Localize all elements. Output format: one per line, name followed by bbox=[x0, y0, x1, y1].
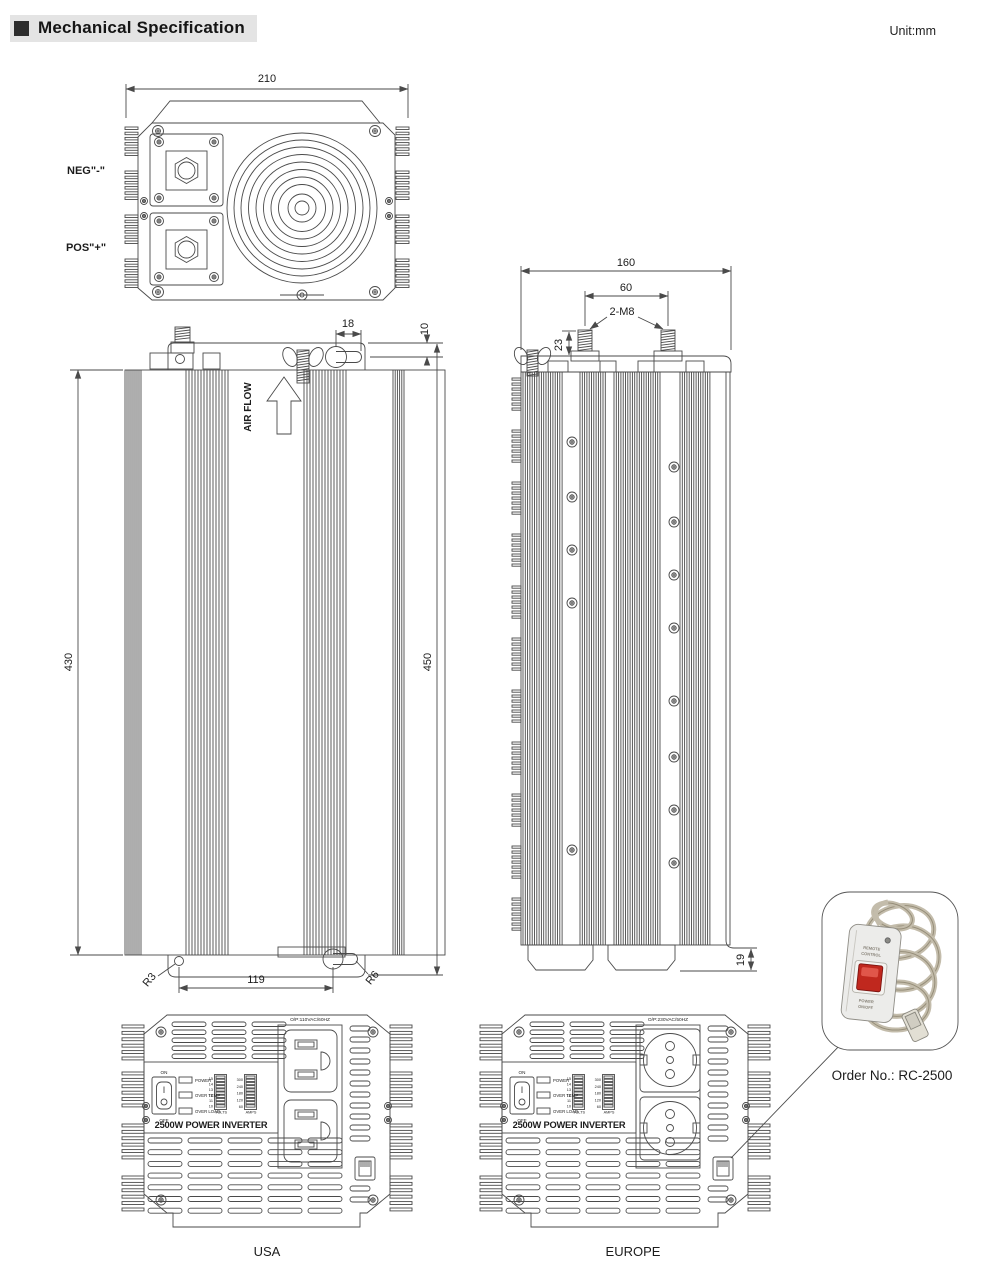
volts-tick: 10 bbox=[209, 1105, 213, 1109]
switch-on-label: ON bbox=[519, 1070, 526, 1075]
dim-bracket-offset: 10 bbox=[419, 323, 431, 335]
dim-keyhole: 18 bbox=[342, 318, 354, 330]
dim-hole-span: 119 bbox=[247, 974, 265, 986]
amps-tick: 120 bbox=[237, 1098, 243, 1102]
volts-tick: 12 bbox=[209, 1094, 213, 1098]
dim-rear-width: 160 bbox=[617, 257, 635, 269]
amps-tick: 180 bbox=[237, 1092, 243, 1096]
dim-stud-height: 23 bbox=[553, 339, 565, 351]
volts-tick: 15 bbox=[209, 1077, 213, 1081]
dim-overall-height: 450 bbox=[422, 653, 434, 671]
over-temp-led-label: OVER TEMP bbox=[553, 1093, 578, 1098]
dim-stud-span: 60 bbox=[620, 282, 632, 294]
product-name: 2500W POWER INVERTER bbox=[155, 1120, 268, 1130]
volts-tick: 13 bbox=[567, 1088, 571, 1092]
amps-tick: 60 bbox=[239, 1105, 243, 1109]
volts-tick: 15 bbox=[567, 1077, 571, 1081]
rear-view-geometry bbox=[512, 266, 757, 971]
volts-tick: 11 bbox=[567, 1099, 571, 1103]
amps-tick: 300 bbox=[595, 1078, 601, 1082]
amps-meter-label: AMPS bbox=[246, 1111, 257, 1115]
mechanical-drawing: 210 NEG"-" POS"+" 430 450 18 10 AIR FLOW… bbox=[0, 0, 1000, 1273]
product-name: 2500W POWER INVERTER bbox=[513, 1120, 626, 1130]
side-view: 430 450 18 10 AIR FLOW 119 R3 R6 bbox=[63, 318, 445, 993]
amps-tick: 60 bbox=[597, 1105, 601, 1109]
amps-tick: 120 bbox=[595, 1098, 601, 1102]
volts-meter-label: VOLTS bbox=[573, 1111, 586, 1115]
volts-tick: 14 bbox=[567, 1083, 571, 1087]
usa-caption: USA bbox=[254, 1244, 281, 1259]
order-number-label: Order No.: RC-2500 bbox=[832, 1068, 953, 1083]
volts-tick: 14 bbox=[209, 1083, 213, 1087]
remote-photo bbox=[822, 892, 958, 1050]
amps-meter-label: AMPS bbox=[604, 1111, 615, 1115]
volts-tick: 12 bbox=[567, 1094, 571, 1098]
front-panel-usa: O/P:110VAC/60HZ ON OFF POWER OVER TEMP O… bbox=[122, 1015, 412, 1259]
radius-r3-label: R3 bbox=[141, 971, 159, 989]
switch-on-label: ON bbox=[161, 1070, 168, 1075]
europe-caption: EUROPE bbox=[606, 1244, 661, 1259]
neg-terminal-label: NEG"-" bbox=[67, 165, 105, 177]
top-view-geometry bbox=[125, 84, 409, 300]
amps-tick: 300 bbox=[237, 1078, 243, 1082]
volts-tick: 11 bbox=[209, 1099, 213, 1103]
pos-terminal-label: POS"+" bbox=[66, 242, 106, 254]
dim-body-height: 430 bbox=[63, 653, 75, 671]
volts-meter-label: VOLTS bbox=[215, 1111, 228, 1115]
amps-tick: 240 bbox=[595, 1085, 601, 1089]
amps-tick: 240 bbox=[237, 1085, 243, 1089]
front-panel-europe: O/P:230VAC/50HZ ON OFF POWER OVER TEMP O… bbox=[480, 1015, 841, 1259]
remote-control-callout: REMOTE CONTROL POWER ON/OFF Order No.: R… bbox=[822, 892, 958, 1083]
volts-tick: 13 bbox=[209, 1088, 213, 1092]
dim-foot-height: 19 bbox=[735, 954, 747, 966]
airflow-label: AIR FLOW bbox=[243, 382, 254, 432]
amps-tick: 180 bbox=[595, 1092, 601, 1096]
over-temp-led-label: OVER TEMP bbox=[195, 1093, 220, 1098]
rear-view: 160 60 2-M8 23 19 bbox=[512, 257, 757, 971]
volts-tick: 10 bbox=[567, 1105, 571, 1109]
dim-top-width: 210 bbox=[258, 73, 276, 85]
side-view-geometry bbox=[70, 327, 445, 993]
studs-label: 2-M8 bbox=[609, 306, 634, 318]
usa-output-label: O/P:110VAC/60HZ bbox=[290, 1017, 330, 1023]
europe-output-label: O/P:230VAC/50HZ bbox=[648, 1017, 688, 1023]
top-view: 210 NEG"-" POS"+" bbox=[66, 73, 409, 300]
